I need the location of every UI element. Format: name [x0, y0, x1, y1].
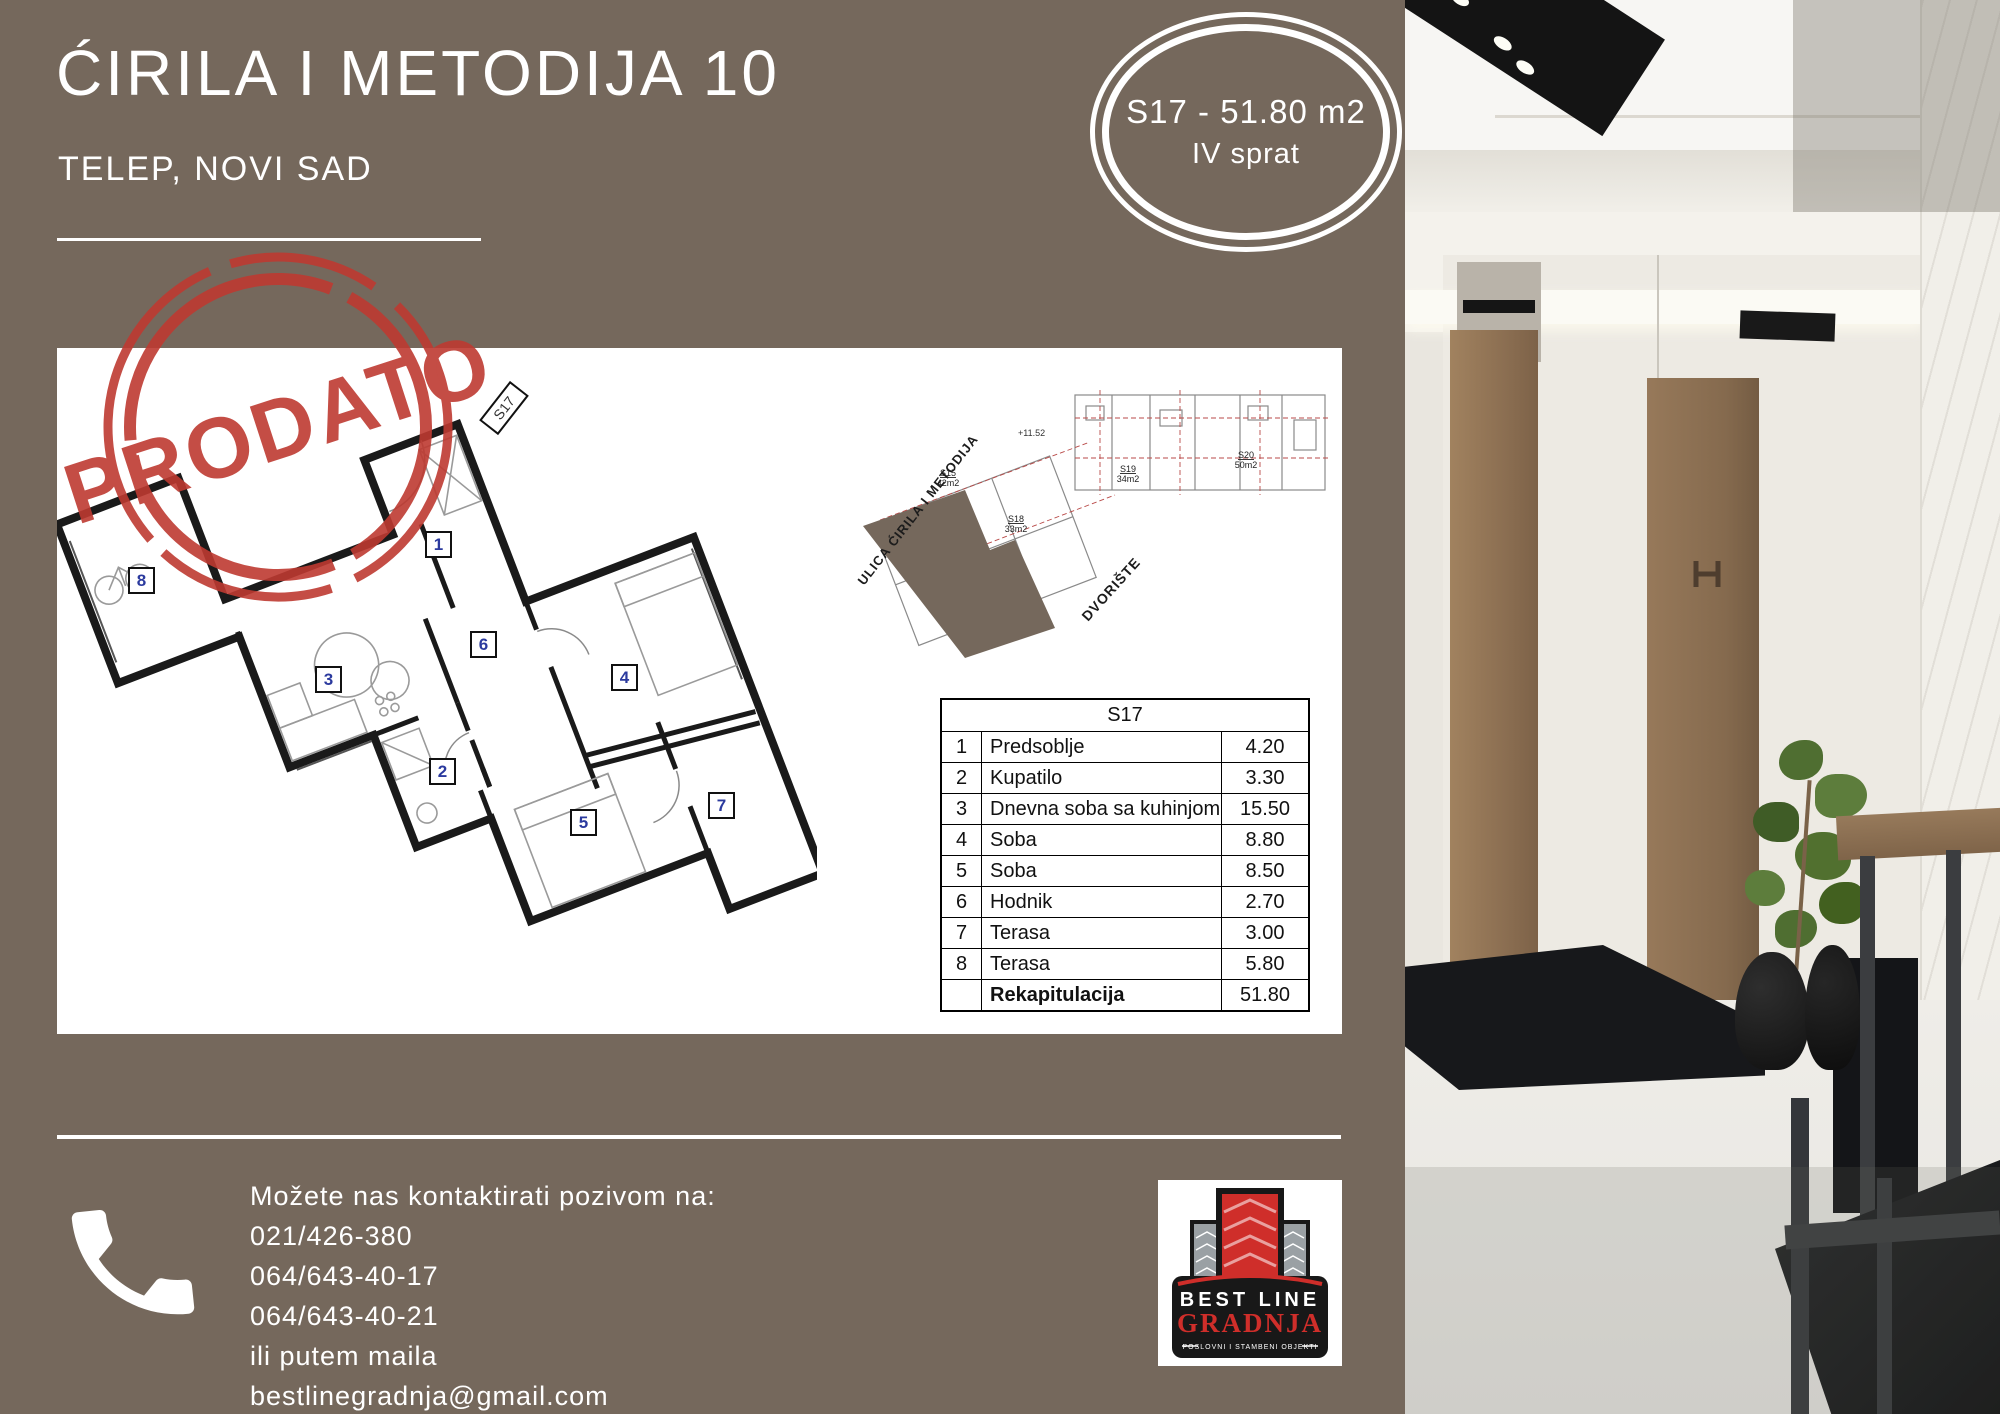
row-num: 5	[942, 856, 982, 886]
floorplan-drawing	[57, 348, 817, 1035]
room-label-8: 8	[128, 567, 155, 594]
table-row: 2Kupatilo3.30	[942, 763, 1308, 794]
plant-vase	[1805, 945, 1860, 1070]
room-label-7: 7	[708, 792, 735, 819]
row-name: Predsoblje	[982, 732, 1222, 762]
logo-tagline: POSLOVNI I STAMBENI OBJEKTI	[1182, 1344, 1317, 1351]
table-row: 6Hodnik2.70	[942, 887, 1308, 918]
row-name: Terasa	[982, 949, 1222, 979]
room-label-3: 3	[315, 666, 342, 693]
plant-vase	[1735, 952, 1809, 1070]
room-label-2: 2	[429, 758, 456, 785]
contact-mail-intro: ili putem maila	[250, 1336, 716, 1376]
room-label-1: 1	[425, 531, 452, 558]
photo-light-slot	[1463, 300, 1535, 313]
interior-photo	[1405, 0, 2000, 1414]
contact-phone: 064/643-40-17	[250, 1256, 716, 1296]
row-name: Rekapitulacija	[982, 980, 1222, 1010]
row-num: 1	[942, 732, 982, 762]
row-num: 7	[942, 918, 982, 948]
contact-divider	[57, 1135, 1341, 1139]
contact-intro: Možete nas kontaktirati pozivom na:	[250, 1176, 716, 1216]
row-value: 51.80	[1222, 980, 1308, 1010]
row-num: 3	[942, 794, 982, 824]
room-label-6-text: 6	[479, 635, 488, 655]
row-name: Soba	[982, 825, 1222, 855]
room-table: S17 1Predsoblje4.20 2Kupatilo3.30 3Dnevn…	[940, 698, 1310, 1012]
row-value: 3.30	[1222, 763, 1308, 793]
photo-light-fixture-small	[1740, 310, 1836, 341]
row-name: Terasa	[982, 918, 1222, 948]
room-label-4-text: 4	[620, 668, 629, 688]
unit-badge-floor: IV sprat	[1192, 138, 1300, 171]
room-label-3-text: 3	[324, 670, 333, 690]
logo-line2: GRADNJA	[1177, 1308, 1323, 1338]
room-label-6: 6	[470, 631, 497, 658]
room-label-8-text: 8	[137, 571, 146, 591]
unit-badge: S17 - 51.80 m2 IV sprat	[1090, 12, 1402, 252]
table-row: 4Soba8.80	[942, 825, 1308, 856]
siteplan-unit-s15: S15	[940, 468, 956, 478]
unit-badge-area: S17 - 51.80 m2	[1126, 93, 1366, 131]
row-value: 3.00	[1222, 918, 1308, 948]
plan-panel: 1 2 3 4 5 6 7 8 S17	[57, 348, 1342, 1034]
contact-phone: 021/426-380	[250, 1216, 716, 1256]
table-row: 8Terasa5.80	[942, 949, 1308, 980]
row-name: Dnevna soba sa kuhinjom	[982, 794, 1222, 824]
table-row: 3Dnevna soba sa kuhinjom15.50	[942, 794, 1308, 825]
siteplan-unit-s19: S19	[1120, 464, 1136, 474]
room-label-5: 5	[570, 809, 597, 836]
company-logo: BEST LINE GRADNJA POSLOVNI I STAMBENI OB…	[1158, 1180, 1342, 1366]
row-name: Soba	[982, 856, 1222, 886]
siteplan-unit-labels: S15 42m2 S18 33m2 S19 34m2 S20 50m2	[937, 450, 1258, 534]
phone-icon	[58, 1178, 208, 1348]
siteplan-drawing: ULICA ĆIRILA I METODIJA DVORIŠTE +11.52 …	[850, 360, 1350, 670]
page-title: ĆIRILA I METODIJA 10	[56, 36, 780, 110]
row-value: 8.80	[1222, 825, 1308, 855]
photo-top-overlay	[1793, 0, 2000, 212]
siteplan-level-label: +11.52	[1018, 428, 1045, 438]
row-num: 6	[942, 887, 982, 917]
photo-bottom-tint	[1405, 1167, 2000, 1414]
row-num: 8	[942, 949, 982, 979]
page-subtitle: TELEP, NOVI SAD	[58, 150, 373, 189]
siteplan-unit-s18: S18	[1008, 514, 1024, 524]
title-underline	[57, 238, 481, 241]
row-name: Kupatilo	[982, 763, 1222, 793]
photo-wood-panel	[1450, 330, 1538, 1025]
row-value: 8.50	[1222, 856, 1308, 886]
room-label-5-text: 5	[579, 813, 588, 833]
row-num	[942, 980, 982, 1010]
siteplan-unit-s20-area: 50m2	[1235, 460, 1258, 470]
siteplan-unit-s18-area: 33m2	[1005, 524, 1028, 534]
door-handle-icon	[1692, 560, 1722, 588]
room-label-1-text: 1	[434, 535, 443, 555]
contact-block: Možete nas kontaktirati pozivom na: 021/…	[250, 1176, 716, 1414]
unit-badge-inner: S17 - 51.80 m2 IV sprat	[1102, 24, 1390, 240]
siteplan-unit-s20: S20	[1238, 450, 1254, 460]
row-name: Hodnik	[982, 887, 1222, 917]
siteplan-yard-label: DVORIŠTE	[1078, 553, 1144, 624]
row-value: 15.50	[1222, 794, 1308, 824]
table-row: 7Terasa3.00	[942, 918, 1308, 949]
room-label-7-text: 7	[717, 796, 726, 816]
siteplan-unit-s19-area: 34m2	[1117, 474, 1140, 484]
row-value: 2.70	[1222, 887, 1308, 917]
row-value: 4.20	[1222, 732, 1308, 762]
contact-phone: 064/643-40-21	[250, 1296, 716, 1336]
company-logo-graphic: BEST LINE GRADNJA POSLOVNI I STAMBENI OB…	[1158, 1180, 1342, 1366]
row-num: 4	[942, 825, 982, 855]
room-label-2-text: 2	[438, 762, 447, 782]
row-value: 5.80	[1222, 949, 1308, 979]
siteplan-unit-s15-area: 42m2	[937, 478, 960, 488]
row-num: 2	[942, 763, 982, 793]
table-row-total: Rekapitulacija51.80	[942, 980, 1308, 1010]
room-label-4: 4	[611, 664, 638, 691]
table-row: 5Soba8.50	[942, 856, 1308, 887]
stair-handrail	[1836, 808, 2000, 861]
table-row: 1Predsoblje4.20	[942, 732, 1308, 763]
room-table-title: S17	[942, 700, 1308, 732]
flyer-canvas: ĆIRILA I METODIJA 10 TELEP, NOVI SAD S17…	[0, 0, 2000, 1414]
contact-email: bestlinegradnja@gmail.com	[250, 1376, 716, 1414]
